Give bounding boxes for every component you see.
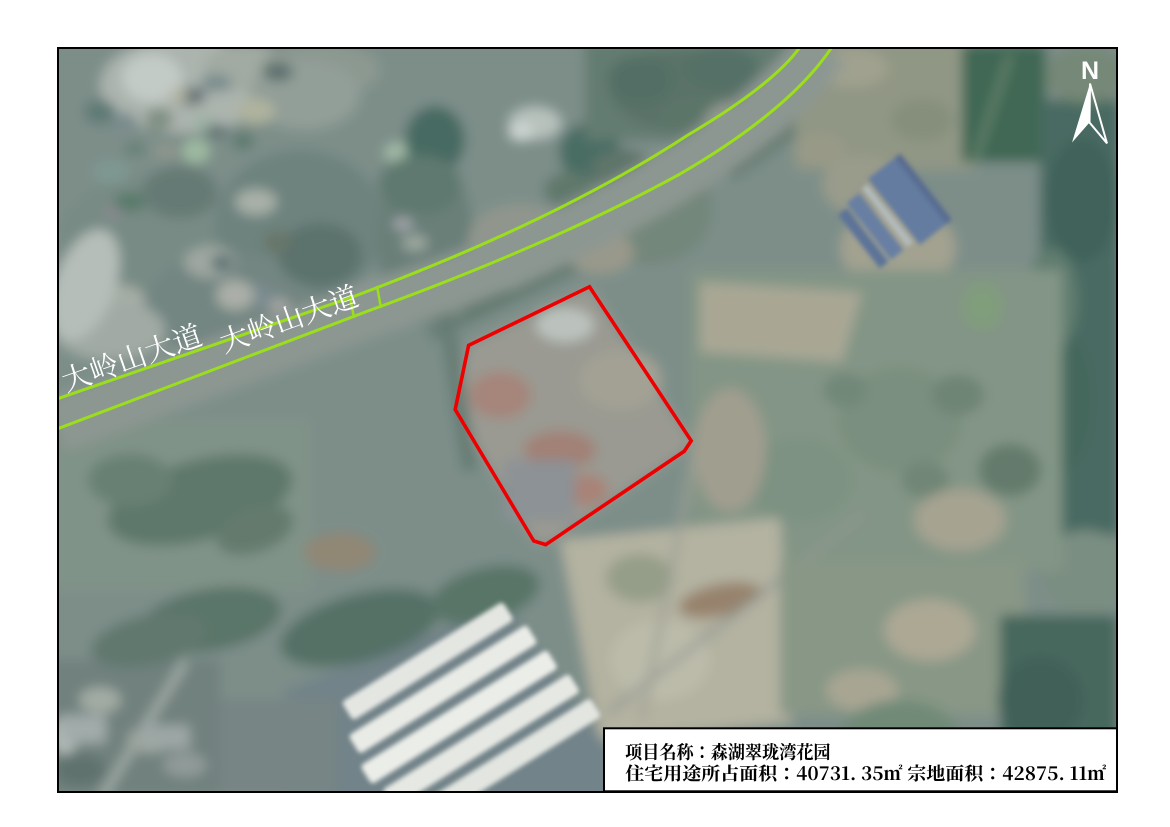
svg-text:N: N [1081,57,1099,85]
